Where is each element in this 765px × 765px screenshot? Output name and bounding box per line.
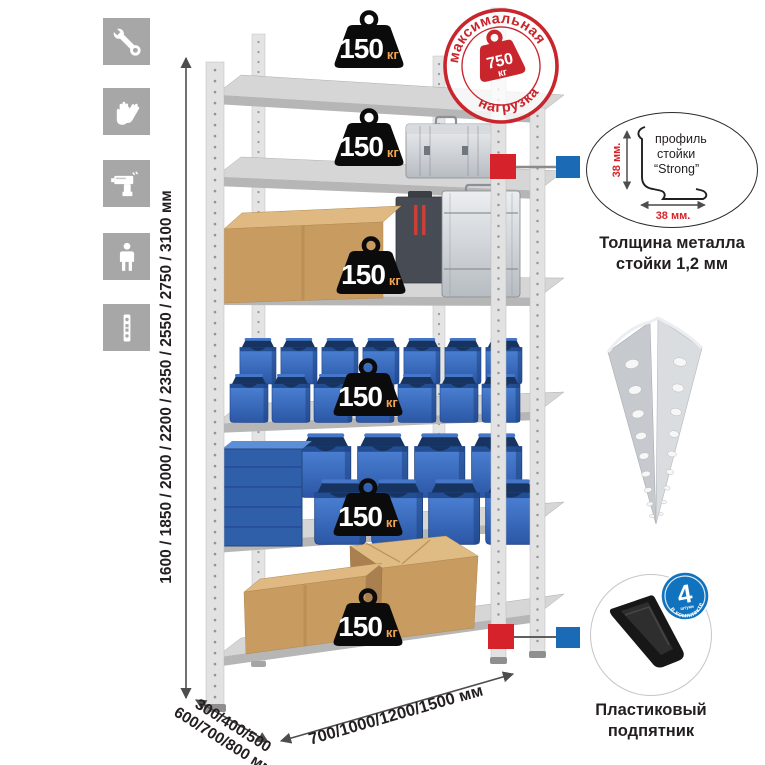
upright-strip-glyph	[110, 311, 144, 345]
person-glyph	[110, 240, 144, 274]
foot-caption-line2: подпятник	[572, 721, 730, 742]
upright-strip-icon	[103, 304, 150, 351]
drill-glyph	[110, 167, 144, 201]
upright-post-far-right	[530, 108, 545, 652]
max-load-stamp: максимальная нагрузка 750 кг	[440, 5, 562, 127]
load-value: 150	[338, 381, 382, 413]
load-unit: кг	[387, 47, 399, 62]
callout-marker-blue	[556, 156, 580, 178]
callout-marker-red	[488, 624, 514, 649]
metal-case-large	[442, 185, 520, 297]
wrench-glyph	[110, 25, 144, 59]
load-unit: кг	[386, 395, 398, 410]
load-value: 150	[338, 501, 382, 533]
angle-profile-piece	[598, 306, 762, 540]
drill-icon	[103, 160, 150, 207]
load-unit: кг	[386, 515, 398, 530]
gloves-glyph	[110, 95, 144, 129]
load-unit: кг	[387, 145, 399, 160]
load-unit: кг	[389, 273, 401, 288]
shelf-load-weight: 150кг	[325, 10, 413, 74]
load-value: 150	[339, 131, 383, 163]
shelf-load-weight: 150кг	[324, 588, 412, 652]
profile-label-line1: профиль	[655, 132, 707, 146]
profile-caption: Толщина металла стойки 1,2 мм	[584, 233, 760, 276]
quantity-badge-graphic: 4 штуки в комплекте	[659, 570, 711, 622]
load-value: 150	[338, 611, 382, 643]
product-infographic: 150кг 150кг 150кг 150кг 150кг 150кг	[0, 0, 765, 765]
person-icon	[103, 233, 150, 280]
profile-label-line2: стойки	[657, 147, 695, 161]
load-unit: кг	[386, 625, 398, 640]
quantity-badge: 4 штуки в комплекте	[659, 570, 711, 622]
callout-marker-blue	[556, 627, 580, 648]
callout-marker-red	[490, 154, 516, 179]
profile-caption-line2: стойки 1,2 мм	[584, 254, 760, 275]
profile-dim-vertical: 38 мм.	[611, 143, 623, 178]
shelf-load-weight: 150кг	[324, 358, 412, 422]
profile-label-line3: “Strong”	[654, 162, 699, 176]
wrench-icon	[103, 18, 150, 65]
gloves-icon	[103, 88, 150, 135]
plastic-foot-caption: Пластиковый подпятник	[572, 700, 730, 743]
height-dimension-label: 1600 / 1850 / 2000 / 2200 / 2350 / 2550 …	[158, 87, 176, 687]
profile-detail-bubble: 38 мм. 38 мм. профиль стойки “Strong”	[586, 112, 758, 228]
shelf-load-weight: 150кг	[324, 478, 412, 542]
load-value: 150	[339, 33, 383, 65]
storage-crate	[222, 441, 312, 546]
shelf-load-weight: 150кг	[327, 236, 415, 300]
stamp-graphic: максимальная нагрузка 750 кг	[440, 5, 562, 127]
profile-dim-horizontal: 38 мм.	[656, 210, 691, 222]
foot-caption-line1: Пластиковый	[572, 700, 730, 721]
profile-caption-line1: Толщина металла	[584, 233, 760, 254]
load-value: 150	[341, 259, 385, 291]
profile-detail-drawing: 38 мм. 38 мм. профиль стойки “Strong”	[587, 113, 757, 227]
upright-post-front-left	[206, 62, 224, 706]
shelf-load-weight: 150кг	[325, 108, 413, 172]
